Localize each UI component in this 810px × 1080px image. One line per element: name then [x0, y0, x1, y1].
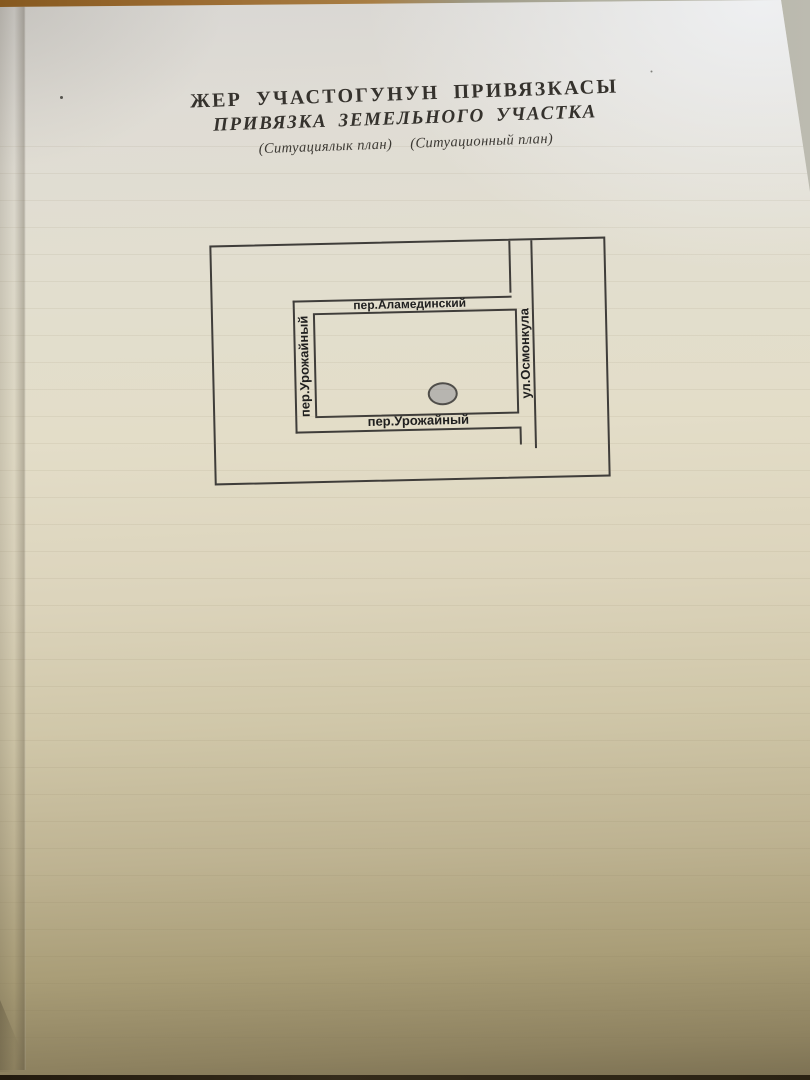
- subtitle-kyrgyz: (Ситуациялык план): [258, 136, 392, 157]
- street-line-right-upper: [508, 241, 511, 293]
- street-label-right: ул.Осмонкула: [516, 308, 533, 399]
- street-label-top: пер.Аламединский: [353, 297, 466, 313]
- document-header: ЖЕР УЧАСТОГУНУН ПРИВЯЗКАСЫ ПРИВЯЗКА ЗЕМЕ…: [0, 70, 810, 166]
- street-label-bottom: пер.Урожайный: [367, 412, 469, 430]
- subtitle-russian: (Ситуационный план): [410, 131, 553, 152]
- street-line-right-stub: [520, 428, 522, 444]
- document-page: ЖЕР УЧАСТОГУНУН ПРИВЯЗКАСЫ ПРИВЯЗКА ЗЕМЕ…: [0, 0, 810, 1080]
- photo-of-document: ЖЕР УЧАСТОГУНУН ПРИВЯЗКАСЫ ПРИВЯЗКА ЗЕМЕ…: [0, 0, 810, 1080]
- street-label-left: пер.Урожайный: [295, 316, 312, 418]
- situational-plan-frame: пер.Аламединский пер.Урожайный пер.Урожа…: [209, 237, 610, 486]
- city-block-outline: [313, 309, 519, 419]
